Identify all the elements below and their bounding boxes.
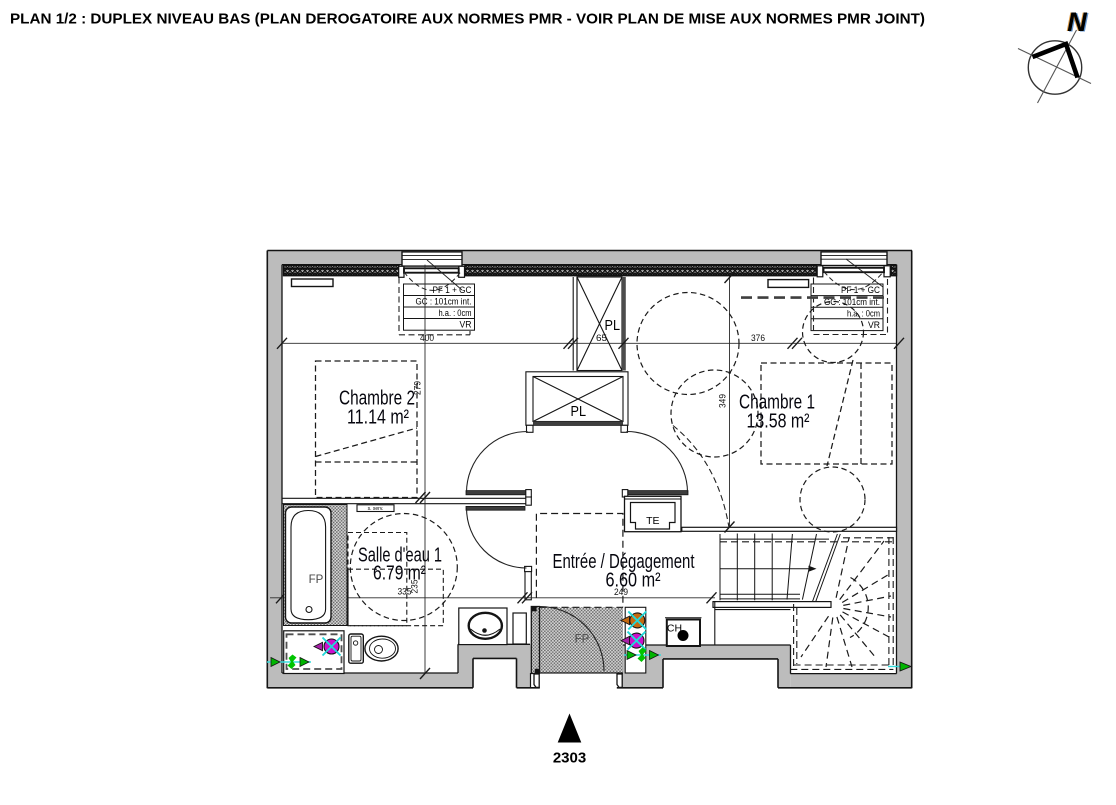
svg-text:VR: VR	[868, 320, 880, 330]
svg-text:13.58 m²: 13.58 m²	[747, 411, 810, 433]
svg-text:N: N	[1067, 7, 1087, 37]
svg-text:GC : 101cm int.: GC : 101cm int.	[416, 297, 472, 307]
svg-text:h.a. : 0cm: h.a. : 0cm	[847, 308, 880, 318]
svg-text:6.79 m²: 6.79 m²	[373, 563, 426, 585]
svg-text:h.a. : 0cm: h.a. : 0cm	[439, 308, 472, 318]
svg-text:FP: FP	[575, 634, 590, 646]
svg-text:11.14 m²: 11.14 m²	[347, 407, 409, 429]
svg-text:PL: PL	[571, 404, 587, 420]
svg-text:2303: 2303	[553, 750, 586, 767]
svg-text:PF 1 + GC: PF 1 + GC	[433, 285, 473, 295]
svg-text:VR: VR	[460, 320, 472, 330]
svg-text:PL: PL	[605, 318, 621, 334]
svg-text:s. serv.: s. serv.	[368, 506, 384, 512]
svg-text:6.60 m²: 6.60 m²	[606, 569, 661, 591]
svg-text:TE: TE	[646, 515, 659, 527]
svg-text:376: 376	[751, 333, 765, 344]
svg-text:349: 349	[718, 394, 729, 408]
svg-text:PF 1 + GC: PF 1 + GC	[841, 285, 881, 295]
svg-text:65: 65	[596, 333, 607, 344]
svg-text:FP: FP	[309, 574, 324, 586]
svg-text:400: 400	[420, 333, 434, 344]
svg-text:PLAN 1/2 : DUPLEX NIVEAU BAS (: PLAN 1/2 : DUPLEX NIVEAU BAS (PLAN DEROG…	[10, 11, 925, 28]
